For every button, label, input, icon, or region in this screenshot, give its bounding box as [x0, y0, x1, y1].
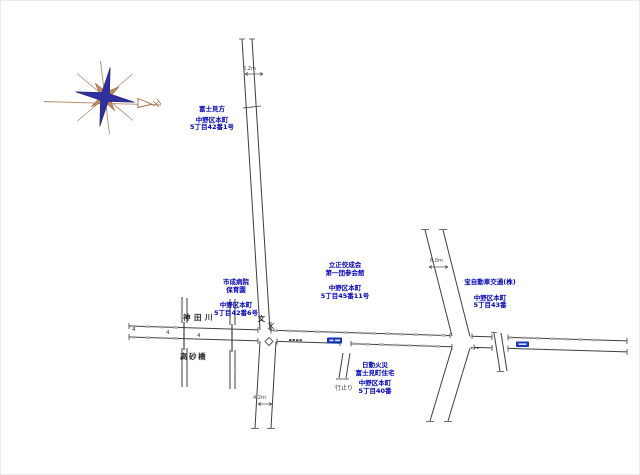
label-rissho-name2: 第一団参会館 [321, 270, 370, 278]
label-nichido-name2: 富士見町住宅 [356, 370, 395, 378]
east-road [421, 230, 470, 422]
label-takara-addr2: 5丁目43番 [464, 302, 515, 310]
dim-north-road: 6.2m [243, 66, 256, 72]
label-nichido: 日動火災 富士見町住宅 中野区本町 5丁目40番 [356, 362, 395, 395]
width-marker-2: 4 [166, 330, 170, 336]
school-mark: 文 [258, 314, 265, 324]
compass-cardinal-star-icon [76, 68, 135, 127]
dead-end-label: 行止り [335, 383, 353, 392]
label-hoikuen-name2: 保育園 [214, 287, 258, 295]
label-nichido-addr2: 5丁目40番 [356, 388, 395, 396]
bridge-name: 高砂橋 [180, 351, 207, 362]
label-fuji: 富士見方 中野区本町 5丁目42番1号 [190, 106, 234, 132]
label-rissho-addr2: 5丁目45番11号 [321, 293, 370, 301]
label-hoikuen: 市成病院 保育園 中野区本町 5丁目42番6号 [214, 279, 258, 317]
label-takara-name: 宝自動車交通(株) [464, 279, 515, 287]
crossing-diamond-icon [265, 338, 273, 346]
dead-end-stub-road [336, 353, 350, 379]
label-fuji-addr2: 5丁目42番1号 [190, 124, 234, 132]
river-name: 神田川 [183, 312, 216, 323]
compass-rose-icon [44, 61, 161, 134]
map-canvas: 富士見方 中野区本町 5丁目42番1号 市成病院 保育園 中野区本町 5丁目42… [0, 0, 640, 475]
label-takara: 宝自動車交通(株) 中野区本町 5丁目43番 [464, 279, 515, 310]
label-rissho: 立正佼成会 第一団参会館 中野区本町 5丁目45番11号 [321, 262, 370, 300]
label-hoikuen-addr2: 5丁目42番6号 [214, 310, 258, 318]
width-marker-3: 4 [197, 333, 201, 339]
compass-east-arrow-icon [138, 99, 152, 108]
south-road [251, 341, 276, 428]
dim-east-road: 6.0m [430, 258, 443, 264]
minor-cross-road [491, 333, 507, 372]
width-marker-1: 4 [132, 327, 136, 333]
route-badge-east [516, 342, 529, 348]
route-badge-west [327, 338, 342, 344]
map-linework [1, 1, 640, 475]
dim-south-road: 4.2m [253, 395, 266, 401]
junction-star-icon [268, 322, 274, 331]
takasago-bridge-lines [184, 322, 232, 352]
label-fuji-name: 富士見方 [190, 106, 234, 114]
